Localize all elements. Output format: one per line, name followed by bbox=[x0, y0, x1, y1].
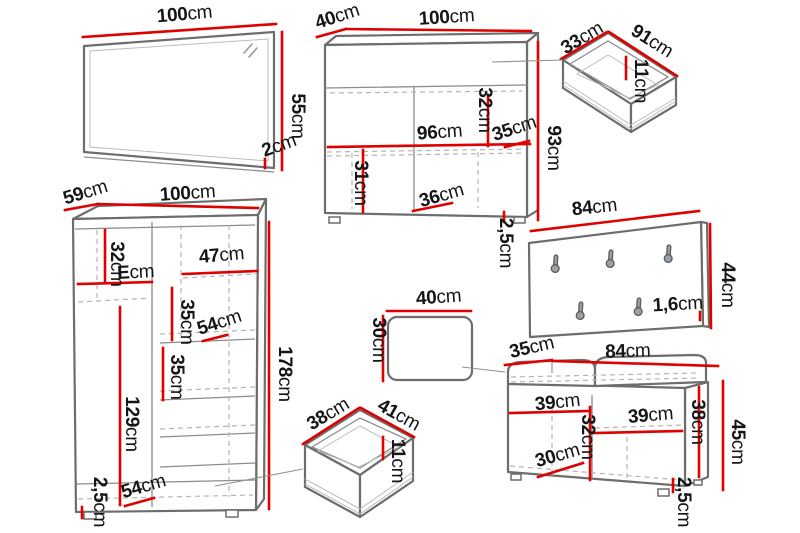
bench-height-label: 45cm bbox=[727, 419, 748, 464]
drawer-top-inner-height-label: 11cm bbox=[630, 59, 651, 103]
wardrobe-height-label: 178cm bbox=[274, 346, 295, 402]
chest-width-label: 100cm bbox=[418, 5, 475, 30]
seat-cushion: 40cm 30cm bbox=[368, 285, 472, 381]
chest-lower-section-label: 31cm bbox=[350, 160, 371, 205]
mirror: 100cm 55cm 2cm bbox=[83, 2, 308, 172]
mirror-width-label: 100cm bbox=[156, 2, 213, 28]
wardrobe-lower-shelf-gap-label: 35cm bbox=[166, 354, 187, 399]
coat-panel-thickness-label: 1,6cm bbox=[652, 293, 703, 317]
cushion-depth-label: 30cm bbox=[368, 317, 389, 362]
bench-plinth-label: 2,5cm bbox=[673, 477, 694, 527]
wardrobe-upper-shelf-gap-label: 35cm bbox=[176, 299, 197, 344]
chest: 40cm 100cm 32cm 96cm 35cm 93cm 31cm 36cm… bbox=[313, 0, 564, 268]
coat-panel-height-dimline bbox=[710, 224, 711, 328]
bench-depth-label: 35cm bbox=[507, 332, 556, 363]
chest-width-dimline bbox=[346, 29, 531, 31]
coat-panel: 84cm 44cm 1,6cm bbox=[529, 195, 738, 337]
bench-width-label: 84cm bbox=[605, 340, 651, 363]
chest-plinth-label: 2,5cm bbox=[495, 218, 516, 268]
bench-inner-height-label: 38cm bbox=[687, 399, 708, 444]
coat-panel-face bbox=[529, 222, 703, 337]
chest-inner-width-label: 96cm bbox=[416, 120, 463, 144]
drawer-bottom: 38cm 41cm 11cm bbox=[303, 394, 424, 517]
cushion-shape bbox=[388, 317, 472, 380]
drawer-top: 33cm 91cm 11cm bbox=[557, 18, 677, 132]
drawer-bottom-inner-height-label: 11cm bbox=[387, 439, 408, 483]
wardrobe-hanging-height-label: 129cm bbox=[121, 396, 142, 452]
chest-height-label: 93cm bbox=[543, 125, 564, 170]
wardrobe-right-compartment-label: 47cm bbox=[198, 243, 245, 268]
wardrobe-plinth-label: 2,5cm bbox=[89, 477, 110, 527]
bench-right-compartment-label: 39cm bbox=[627, 403, 674, 428]
coat-panel-height-label: 44cm bbox=[717, 262, 738, 307]
coat-panel-width-label: 84cm bbox=[571, 195, 618, 221]
wardrobe: 59cm 100cm 32cm Ecm 47cm 35cm 54cm 35cm … bbox=[61, 176, 295, 527]
wardrobe-width-label: 100cm bbox=[159, 181, 216, 206]
cushion-width-label: 40cm bbox=[415, 285, 462, 309]
wardrobe-left-compartment-label: Ecm bbox=[117, 261, 155, 284]
furniture-dimension-diagram: 100cm 55cm 2cm 40cm 100cm 32cm 96cm 35cm… bbox=[0, 0, 800, 533]
diagram-canvas: 100cm 55cm 2cm 40cm 100cm 32cm 96cm 35cm… bbox=[0, 0, 800, 533]
shoe-bench: 35cm 84cm 39cm 39cm 38cm 32cm 30cm 45cm … bbox=[505, 332, 748, 527]
